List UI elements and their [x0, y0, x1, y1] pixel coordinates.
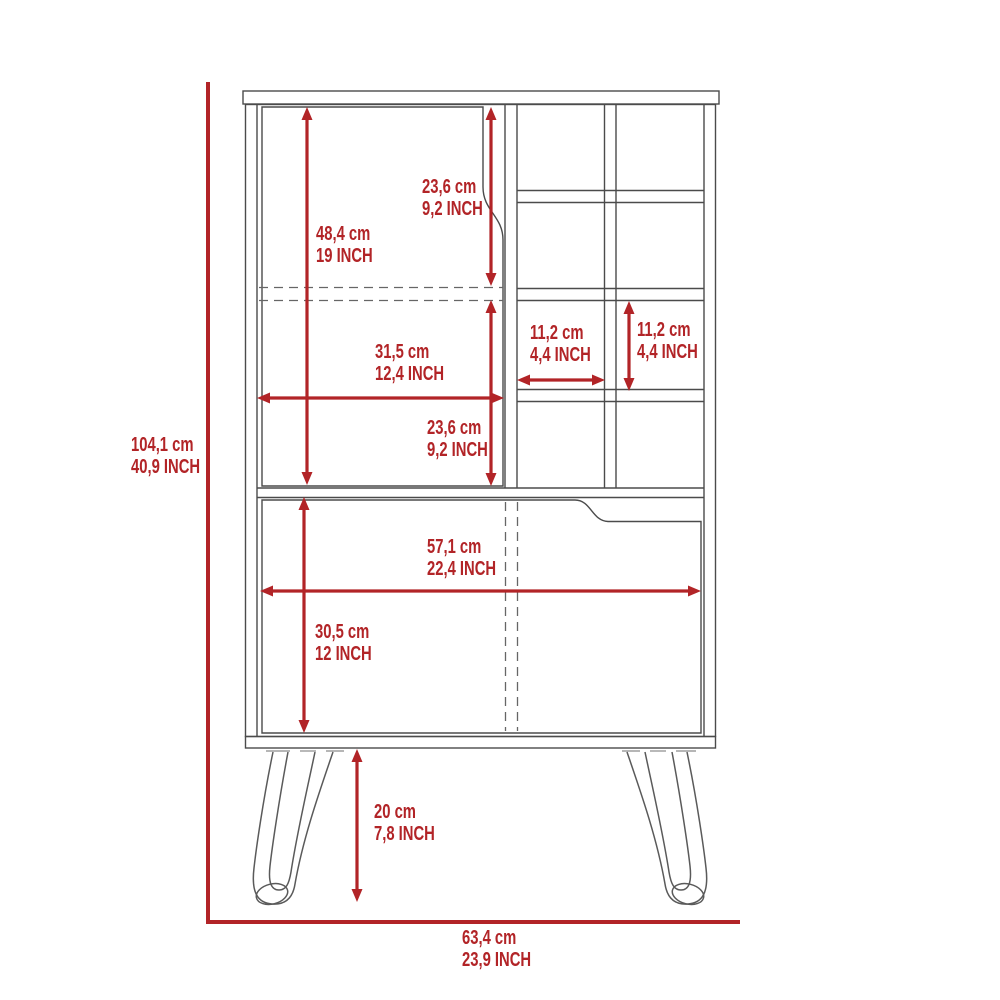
dim-value-cm: 48,4 cm — [316, 224, 373, 246]
dim-value-inch: 23,9 INCH — [462, 950, 531, 972]
wine-rack-divider — [605, 105, 617, 489]
dim-arrow-lower-door-width — [260, 586, 701, 597]
dim-label-lower-door-height: 30,5 cm 12 INCH — [315, 622, 372, 665]
right-hairpin-leg — [627, 752, 707, 908]
dim-value-inch: 4,4 INCH — [637, 342, 698, 364]
dim-label-upper-door-width: 31,5 cm 12,4 INCH — [375, 342, 444, 385]
dim-value-cm: 11,2 cm — [637, 320, 698, 342]
dim-value-cm: 20 cm — [374, 802, 435, 824]
dim-arrow-upper-compartment-height — [486, 107, 497, 286]
dim-label-overall-width: 63,4 cm 23,9 INCH — [462, 928, 531, 971]
mid-rail — [257, 488, 704, 498]
dim-arrow-upper-door-height — [302, 107, 313, 485]
right-leg-foot — [670, 880, 706, 907]
dim-value-cm: 30,5 cm — [315, 622, 372, 644]
dim-value-inch: 12,4 INCH — [375, 364, 444, 386]
dim-label-leg-height: 20 cm 7,8 INCH — [374, 802, 435, 845]
dim-value-inch: 7,8 INCH — [374, 824, 435, 846]
dim-label-lower-door-width: 57,1 cm 22,4 INCH — [427, 537, 496, 580]
left-leg-foot — [254, 880, 290, 907]
dim-value-inch: 4,4 INCH — [530, 345, 591, 367]
dim-label-lower-compartment-height: 23,6 cm 9,2 INCH — [427, 418, 488, 461]
dim-label-cubby-width: 11,2 cm 4,4 INCH — [530, 323, 591, 366]
dim-value-cm: 63,4 cm — [462, 928, 531, 950]
dim-value-cm: 23,6 cm — [422, 177, 483, 199]
dim-value-cm: 23,6 cm — [427, 418, 488, 440]
dim-arrow-upper-door-width — [257, 393, 504, 404]
dim-value-inch: 9,2 INCH — [427, 440, 488, 462]
cabinet-line-drawing — [0, 0, 1000, 1000]
dim-value-inch: 12 INCH — [315, 644, 372, 666]
dim-label-cubby-height: 11,2 cm 4,4 INCH — [637, 320, 698, 363]
dim-label-upper-door-height: 48,4 cm 19 INCH — [316, 224, 373, 267]
dim-value-inch: 40,9 INCH — [131, 457, 200, 479]
dim-arrow-lower-door-height — [299, 497, 310, 733]
wine-rack-shelves — [517, 191, 704, 402]
dim-arrow-cubby-height — [624, 301, 635, 391]
plinth — [246, 737, 716, 749]
dim-arrow-cubby-width — [517, 375, 605, 386]
dim-value-inch: 22,4 INCH — [427, 559, 496, 581]
dim-value-inch: 19 INCH — [316, 246, 373, 268]
dim-value-cm: 104,1 cm — [131, 435, 200, 457]
left-hairpin-leg — [253, 752, 333, 908]
dim-value-cm: 57,1 cm — [427, 537, 496, 559]
furniture-dimension-diagram: 104,1 cm 40,9 INCH 23,6 cm 9,2 INCH 48,4… — [0, 0, 1000, 1000]
dim-value-cm: 31,5 cm — [375, 342, 444, 364]
dim-arrow-leg-height — [352, 749, 363, 902]
dim-label-upper-compartment-height: 23,6 cm 9,2 INCH — [422, 177, 483, 220]
cabinet-top-panel — [243, 91, 719, 104]
lower-door — [262, 500, 701, 733]
dim-value-cm: 11,2 cm — [530, 323, 591, 345]
center-partition — [505, 105, 517, 489]
dim-label-overall-height: 104,1 cm 40,9 INCH — [131, 435, 200, 478]
dim-value-inch: 9,2 INCH — [422, 199, 483, 221]
